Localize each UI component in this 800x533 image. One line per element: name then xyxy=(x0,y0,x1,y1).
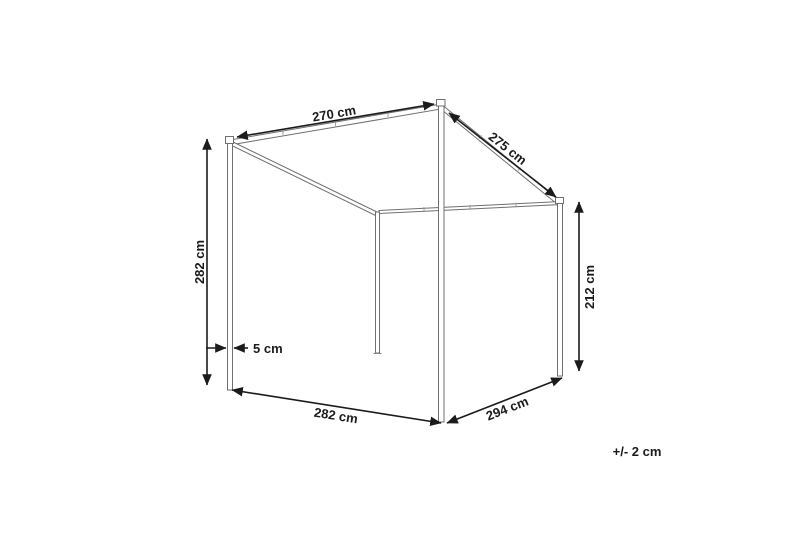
dim-roof-side: 275 cm xyxy=(449,113,556,197)
dimension-diagram: 270 cm 275 cm 282 cm 212 cm 5 cm xyxy=(0,0,800,533)
dim-height-back: 212 cm xyxy=(579,202,597,371)
corner-cap-front-left xyxy=(226,137,234,144)
dim-base-front-label: 282 cm xyxy=(313,405,359,427)
frame-left-roof-beam xyxy=(229,141,377,215)
dim-roof-front: 270 cm xyxy=(237,102,434,137)
canopy-frame-drawing: 270 cm 275 cm 282 cm 212 cm 5 cm xyxy=(0,0,800,533)
corner-cap-apex xyxy=(437,100,446,107)
dim-base-side: 294 cm xyxy=(447,378,562,423)
post-back-right xyxy=(558,202,563,376)
tolerance-note: +/- 2 cm xyxy=(613,444,662,459)
dim-height-front-label: 282 cm xyxy=(192,240,207,284)
dim-base-side-label: 294 cm xyxy=(484,393,531,423)
dim-base-front: 282 cm xyxy=(232,390,441,426)
dim-height-back-label: 212 cm xyxy=(582,265,597,309)
post-back-left xyxy=(376,212,380,353)
dim-post-width-label: 5 cm xyxy=(253,341,283,356)
dim-post-width: 5 cm xyxy=(206,341,283,356)
dim-height-front: 282 cm xyxy=(192,139,207,385)
post-front-left xyxy=(228,140,233,390)
post-front-right xyxy=(439,103,445,422)
corner-cap-back-right xyxy=(556,198,564,204)
